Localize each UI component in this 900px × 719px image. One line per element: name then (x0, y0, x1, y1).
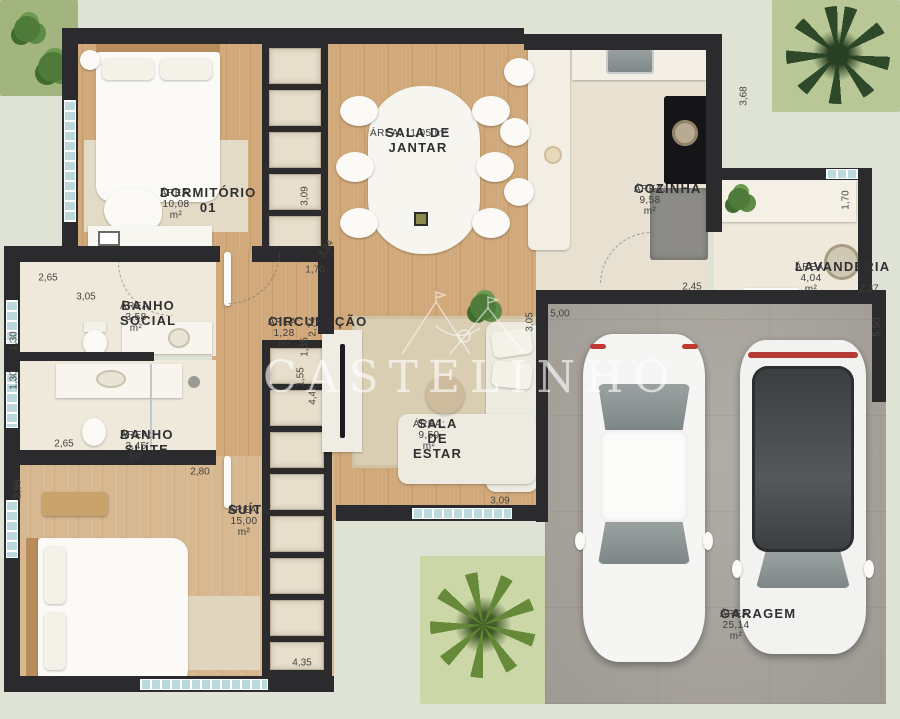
dining-chair (340, 208, 378, 238)
window (826, 169, 860, 179)
car-windshield (598, 522, 690, 564)
dimension: 2,45 (682, 282, 701, 293)
shower-head-icon (188, 376, 200, 388)
castle-logo-icon (388, 288, 538, 358)
window (64, 100, 76, 222)
coffee-cup (544, 146, 562, 164)
palm-tree-icon (430, 572, 536, 678)
wardrobe-shelf (270, 600, 324, 636)
wardrobe-shelf (269, 90, 321, 126)
dimension: 3,05 (76, 292, 95, 303)
suite-bed-headboard (26, 538, 38, 686)
dining-chair (476, 152, 514, 182)
wardrobe-shelf (269, 174, 321, 210)
shrub-icon (14, 16, 40, 42)
dimension: 5,50 (872, 317, 883, 336)
dimension: 3,68 (739, 86, 750, 105)
bed-pillow (44, 546, 66, 604)
bar-stool (504, 178, 534, 206)
car-mirror-icon (575, 532, 585, 550)
kitchen-sink (606, 48, 654, 74)
dimension: 2,37 (859, 284, 878, 295)
car-windshield (756, 552, 850, 588)
car-taillight-icon (590, 344, 606, 349)
dining-chair (336, 152, 374, 182)
dimension: 4,35 (292, 658, 311, 669)
wardrobe-shelf (270, 516, 324, 552)
wall (536, 290, 886, 304)
pan-icon (672, 120, 698, 146)
dimension: 1,30 (9, 331, 20, 350)
wall (4, 352, 154, 361)
toilet-bowl (82, 418, 106, 446)
wardrobe-shelf (269, 132, 321, 168)
dimension: 1,30 (9, 370, 20, 389)
table-decor (414, 212, 428, 226)
wall (62, 28, 524, 44)
door-leaf (224, 456, 231, 508)
palm-tree-icon (786, 6, 890, 104)
plant-pot (80, 50, 100, 70)
watermark: CASTELINHO (263, 352, 653, 403)
car-roof (600, 430, 688, 522)
dining-chair (472, 208, 510, 238)
floor-plan: DORMITÓRIO 01 ÁREA: 10,08 m² SALA DE JAN… (0, 0, 900, 719)
wardrobe-shelf (269, 48, 321, 84)
dimension: 2,65 (54, 439, 73, 450)
dining-chair (340, 96, 378, 126)
dimension: 1,70 (305, 265, 324, 276)
car-taillight-bar-icon (748, 352, 858, 358)
dimension: 5,00 (550, 309, 569, 320)
window (140, 679, 268, 690)
bed-pillow (102, 58, 154, 80)
bar-stool (500, 118, 530, 146)
dimension: 2,65 (38, 273, 57, 284)
dining-table (368, 86, 480, 254)
car-mirror-icon (703, 532, 713, 550)
plant-icon (728, 188, 750, 210)
car-glass-roof (752, 366, 854, 552)
wall (706, 34, 722, 184)
window (6, 500, 18, 558)
wardrobe-shelf (270, 558, 324, 594)
suite-bench (42, 492, 108, 516)
wall (4, 450, 216, 465)
wall (872, 290, 886, 402)
dimension: 1,70 (841, 190, 852, 209)
window (412, 508, 512, 519)
basin (96, 370, 126, 388)
dimension: 2,74 (308, 317, 319, 336)
dimension: 3,09 (300, 186, 311, 205)
basin (168, 328, 190, 348)
wardrobe-shelf (270, 432, 324, 468)
wall (858, 168, 872, 302)
car-mirror-icon (732, 560, 742, 578)
dimension: 2,95 (13, 479, 24, 498)
wall (4, 246, 220, 262)
wall (706, 180, 722, 232)
wardrobe-shelf (270, 474, 324, 510)
bed-pillow (160, 58, 212, 80)
wall (524, 34, 722, 50)
bar-stool (504, 58, 534, 86)
bed-pillow (44, 612, 66, 670)
dimension: 3,09 (490, 496, 509, 507)
decor-box (98, 231, 120, 246)
car-mirror-icon (864, 560, 874, 578)
car-taillight-icon (682, 344, 698, 349)
dimension: 2,80 (190, 467, 209, 478)
